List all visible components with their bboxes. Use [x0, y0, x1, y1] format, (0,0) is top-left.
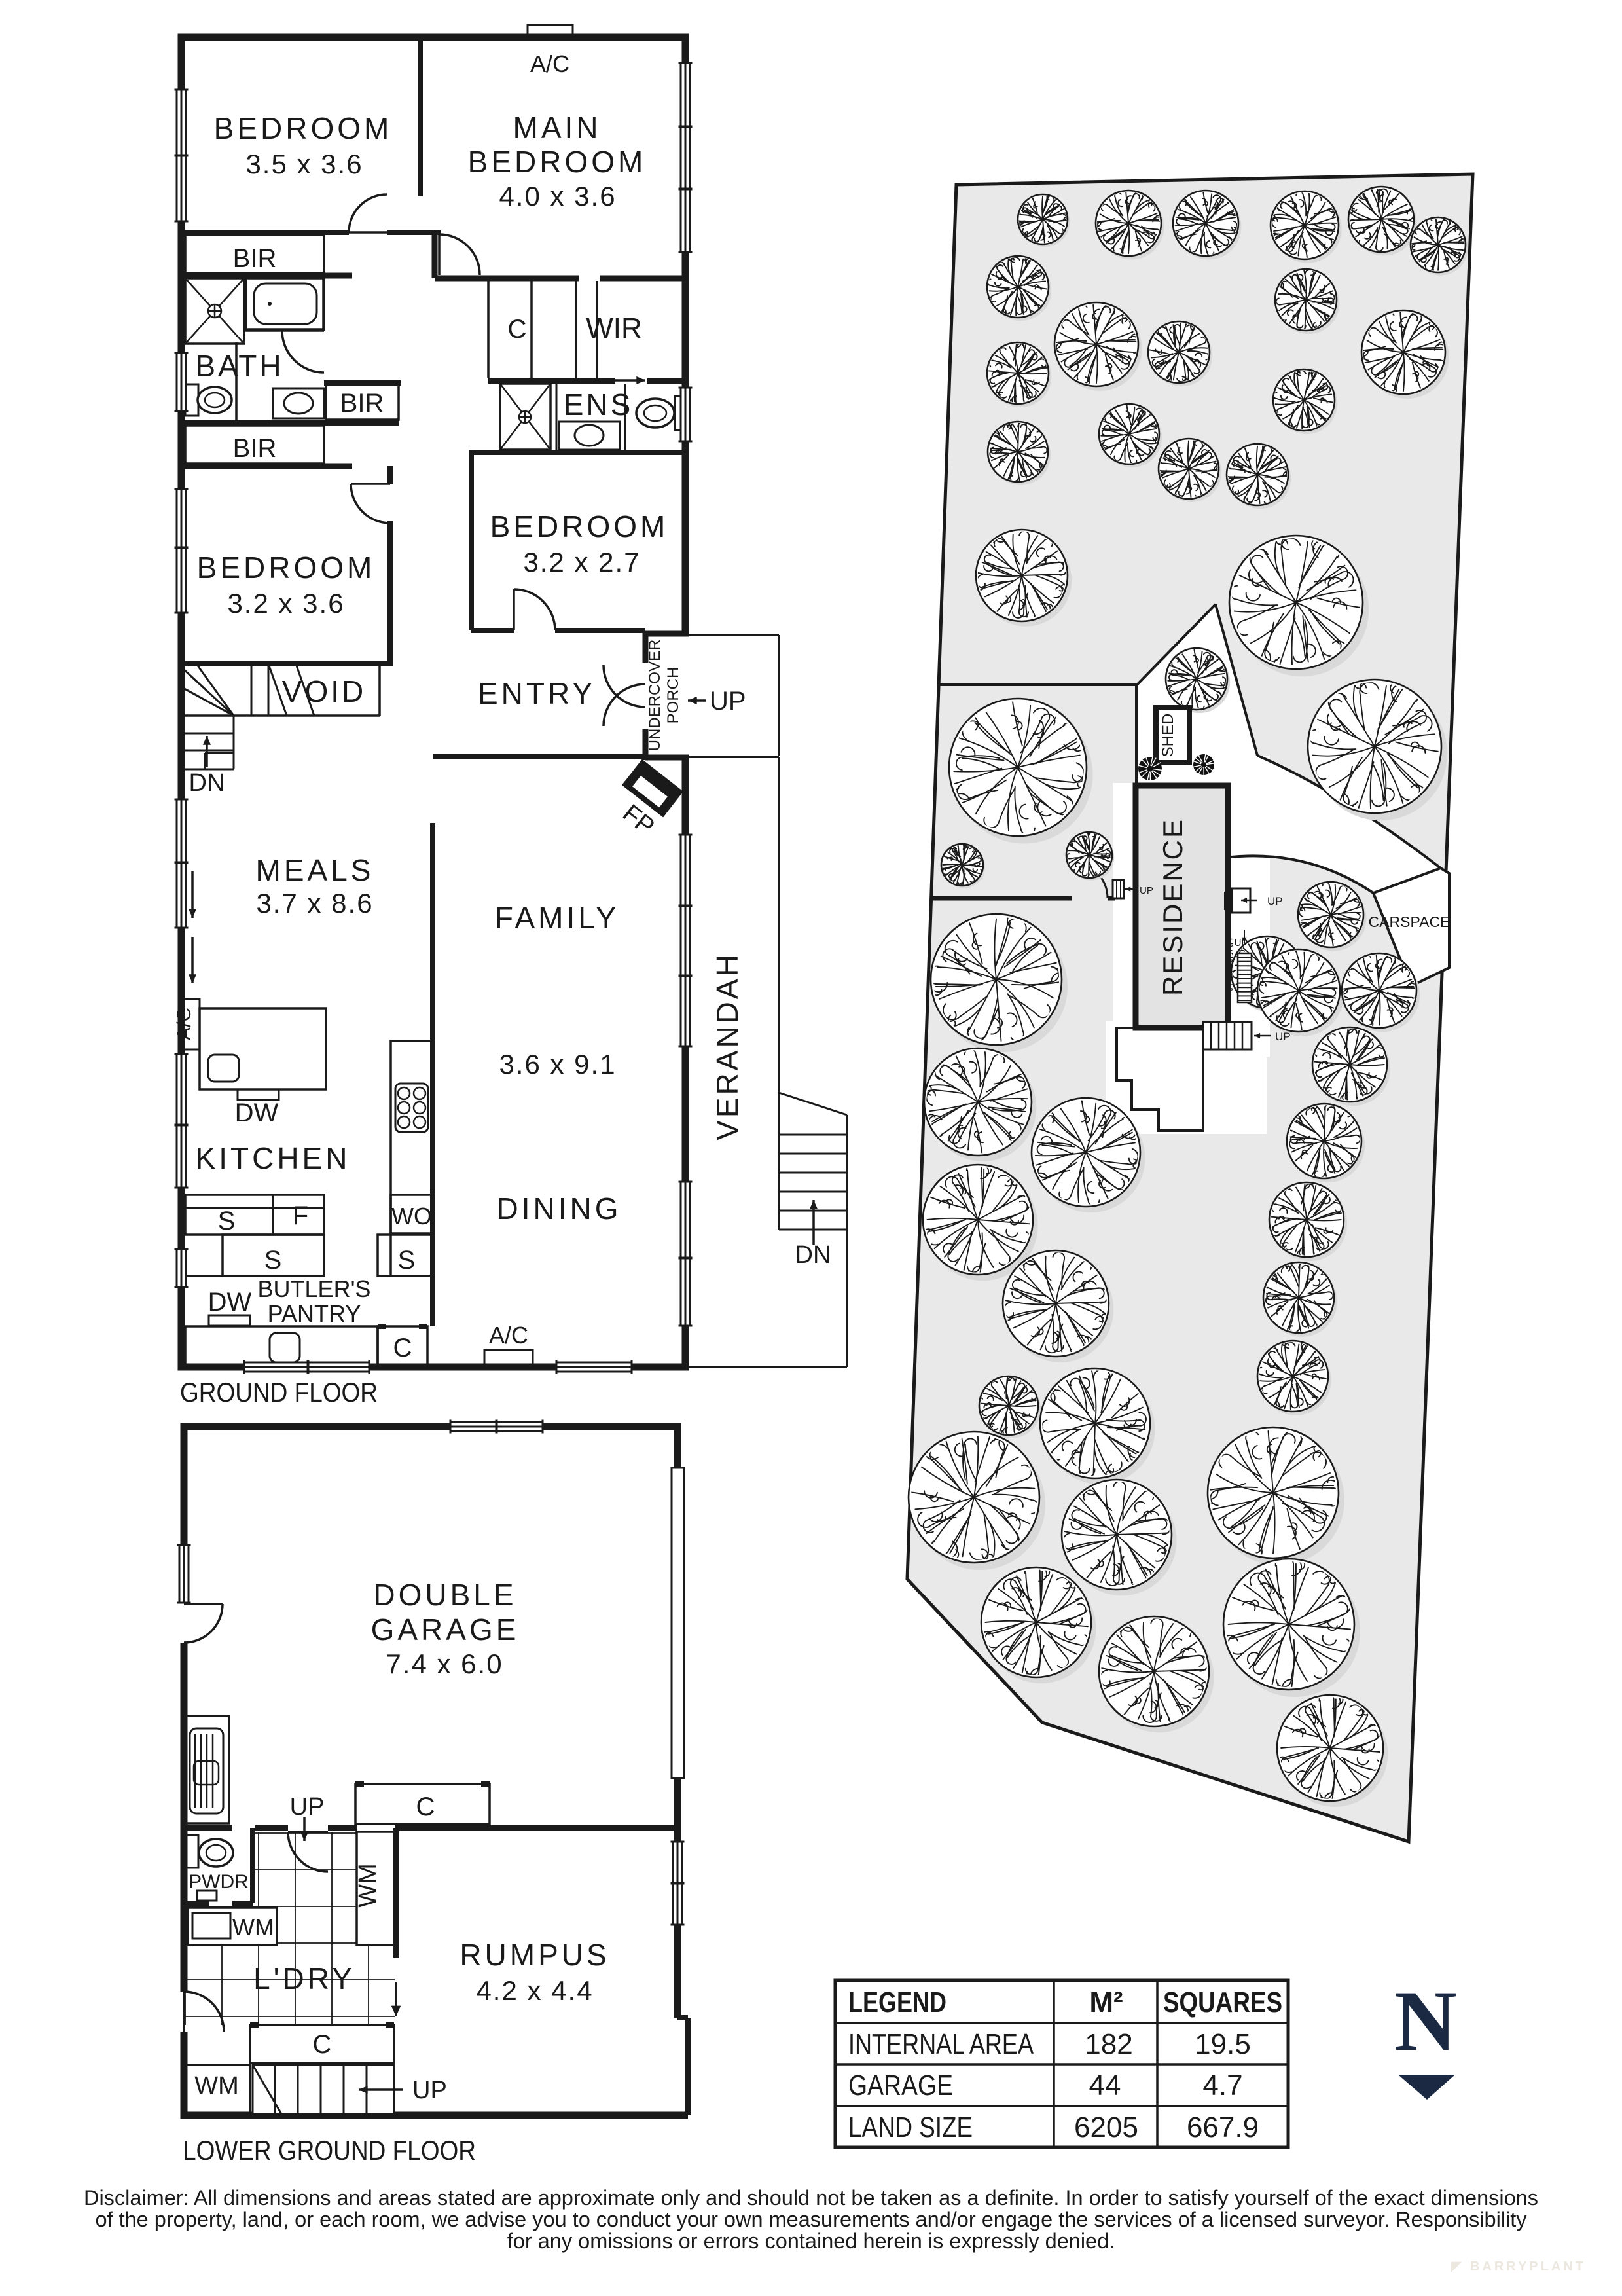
svg-text:LOWER GROUND FLOOR: LOWER GROUND FLOOR	[183, 2135, 476, 2166]
svg-text:UP: UP	[1267, 895, 1283, 907]
svg-text:7.4 x 6.0: 7.4 x 6.0	[386, 1649, 503, 1679]
svg-text:M²: M²	[1089, 1986, 1123, 2018]
svg-text:DINING: DINING	[497, 1192, 622, 1226]
svg-text:S: S	[218, 1207, 236, 1235]
svg-text:BATH: BATH	[195, 349, 283, 383]
svg-text:Disclaimer: All dimensions and: Disclaimer: All dimensions and areas sta…	[84, 2186, 1538, 2210]
svg-text:GARAGE: GARAGE	[371, 1613, 520, 1647]
svg-text:DN: DN	[189, 769, 225, 797]
svg-text:4.7: 4.7	[1202, 2069, 1242, 2102]
svg-text:CARSPACE: CARSPACE	[1369, 913, 1451, 930]
svg-text:WIR: WIR	[586, 312, 642, 344]
svg-text:19.5: 19.5	[1195, 2028, 1251, 2060]
svg-text:BEDROOM: BEDROOM	[490, 509, 669, 543]
svg-text:BEDROOM: BEDROOM	[214, 111, 393, 145]
svg-text:3.6 x 9.1: 3.6 x 9.1	[499, 1049, 616, 1080]
svg-text:A/C: A/C	[530, 50, 569, 77]
svg-text:of the property, land, or each: of the property, land, or each room, we …	[95, 2208, 1527, 2231]
svg-text:RESIDENCE: RESIDENCE	[1157, 818, 1188, 996]
svg-text:4.2 x 4.4: 4.2 x 4.4	[476, 1975, 593, 2006]
svg-text:GARAGE: GARAGE	[848, 2069, 953, 2102]
svg-text:182: 182	[1085, 2028, 1132, 2060]
svg-text:RUMPUS: RUMPUS	[460, 1938, 609, 1972]
svg-text:DW: DW	[235, 1099, 279, 1127]
svg-text:WM: WM	[232, 1914, 274, 1941]
svg-text:PWDR: PWDR	[189, 1871, 249, 1893]
svg-text:BIR: BIR	[233, 434, 277, 463]
svg-text:BUTLER'S: BUTLER'S	[258, 1275, 371, 1302]
svg-text:S: S	[398, 1246, 416, 1275]
svg-text:BIR: BIR	[340, 389, 384, 418]
svg-text:ENS: ENS	[564, 388, 634, 422]
svg-text:UNDERCOVER: UNDERCOVER	[646, 640, 664, 752]
svg-text:INTERNAL AREA: INTERNAL AREA	[848, 2028, 1034, 2060]
svg-text:FAMILY: FAMILY	[495, 901, 619, 935]
svg-text:DW: DW	[208, 1288, 252, 1317]
svg-text:UP: UP	[1140, 885, 1153, 896]
svg-text:GROUND FLOOR: GROUND FLOOR	[180, 1377, 378, 1408]
svg-text:WM: WM	[194, 2072, 239, 2100]
svg-text:UP: UP	[412, 2077, 447, 2104]
svg-text:A/C: A/C	[173, 1008, 195, 1040]
svg-text:C: C	[393, 1334, 412, 1362]
svg-text:UP: UP	[1275, 1030, 1291, 1043]
svg-text:6205: 6205	[1074, 2111, 1138, 2143]
svg-text:BIR: BIR	[233, 244, 277, 273]
svg-text:SHED: SHED	[1159, 714, 1177, 757]
svg-text:C: C	[313, 2030, 332, 2059]
svg-text:VOID: VOID	[282, 674, 366, 708]
svg-text:PANTRY: PANTRY	[268, 1300, 361, 1327]
svg-text:LAND SIZE: LAND SIZE	[848, 2111, 973, 2143]
svg-text:A/C: A/C	[489, 1322, 528, 1349]
svg-text:KITCHEN: KITCHEN	[196, 1141, 351, 1175]
svg-text:◤ BARRYPLANT: ◤ BARRYPLANT	[1451, 2259, 1586, 2274]
svg-text:44: 44	[1089, 2069, 1121, 2102]
svg-text:F: F	[293, 1201, 308, 1230]
svg-text:UP: UP	[710, 687, 746, 716]
svg-text:ENTRY: ENTRY	[478, 676, 596, 710]
svg-text:4.0 x 3.6: 4.0 x 3.6	[499, 181, 616, 211]
svg-text:BEDROOM: BEDROOM	[197, 551, 376, 585]
svg-text:MEALS: MEALS	[256, 853, 374, 887]
svg-text:UP: UP	[290, 1793, 325, 1821]
svg-text:S: S	[264, 1246, 282, 1275]
svg-text:L'DRY: L'DRY	[253, 1961, 355, 1995]
svg-text:SQUARES: SQUARES	[1163, 1986, 1282, 2018]
svg-text:667.9: 667.9	[1187, 2111, 1259, 2143]
svg-text:C: C	[508, 315, 527, 344]
svg-text:BEDROOM: BEDROOM	[468, 145, 647, 179]
svg-text:DN: DN	[795, 1241, 831, 1269]
svg-text:3.5 x 3.6: 3.5 x 3.6	[245, 149, 363, 179]
svg-text:WM: WM	[354, 1863, 382, 1908]
svg-text:DOUBLE: DOUBLE	[373, 1578, 516, 1612]
svg-text:VERANDAH: VERANDAH	[710, 952, 744, 1140]
svg-text:for any omissions or errors co: for any omissions or errors contained he…	[507, 2229, 1115, 2253]
svg-text:N: N	[1394, 1973, 1456, 2069]
svg-text:PORCH: PORCH	[664, 667, 682, 724]
svg-text:MAIN: MAIN	[513, 111, 602, 145]
svg-text:3.2 x 2.7: 3.2 x 2.7	[523, 547, 640, 577]
svg-text:C: C	[416, 1793, 435, 1821]
svg-text:3.2 x 3.6: 3.2 x 3.6	[227, 588, 344, 619]
svg-text:LEGEND: LEGEND	[848, 1986, 946, 2018]
svg-text:3.7 x 8.6: 3.7 x 8.6	[256, 888, 373, 919]
svg-text:WO: WO	[391, 1203, 432, 1230]
